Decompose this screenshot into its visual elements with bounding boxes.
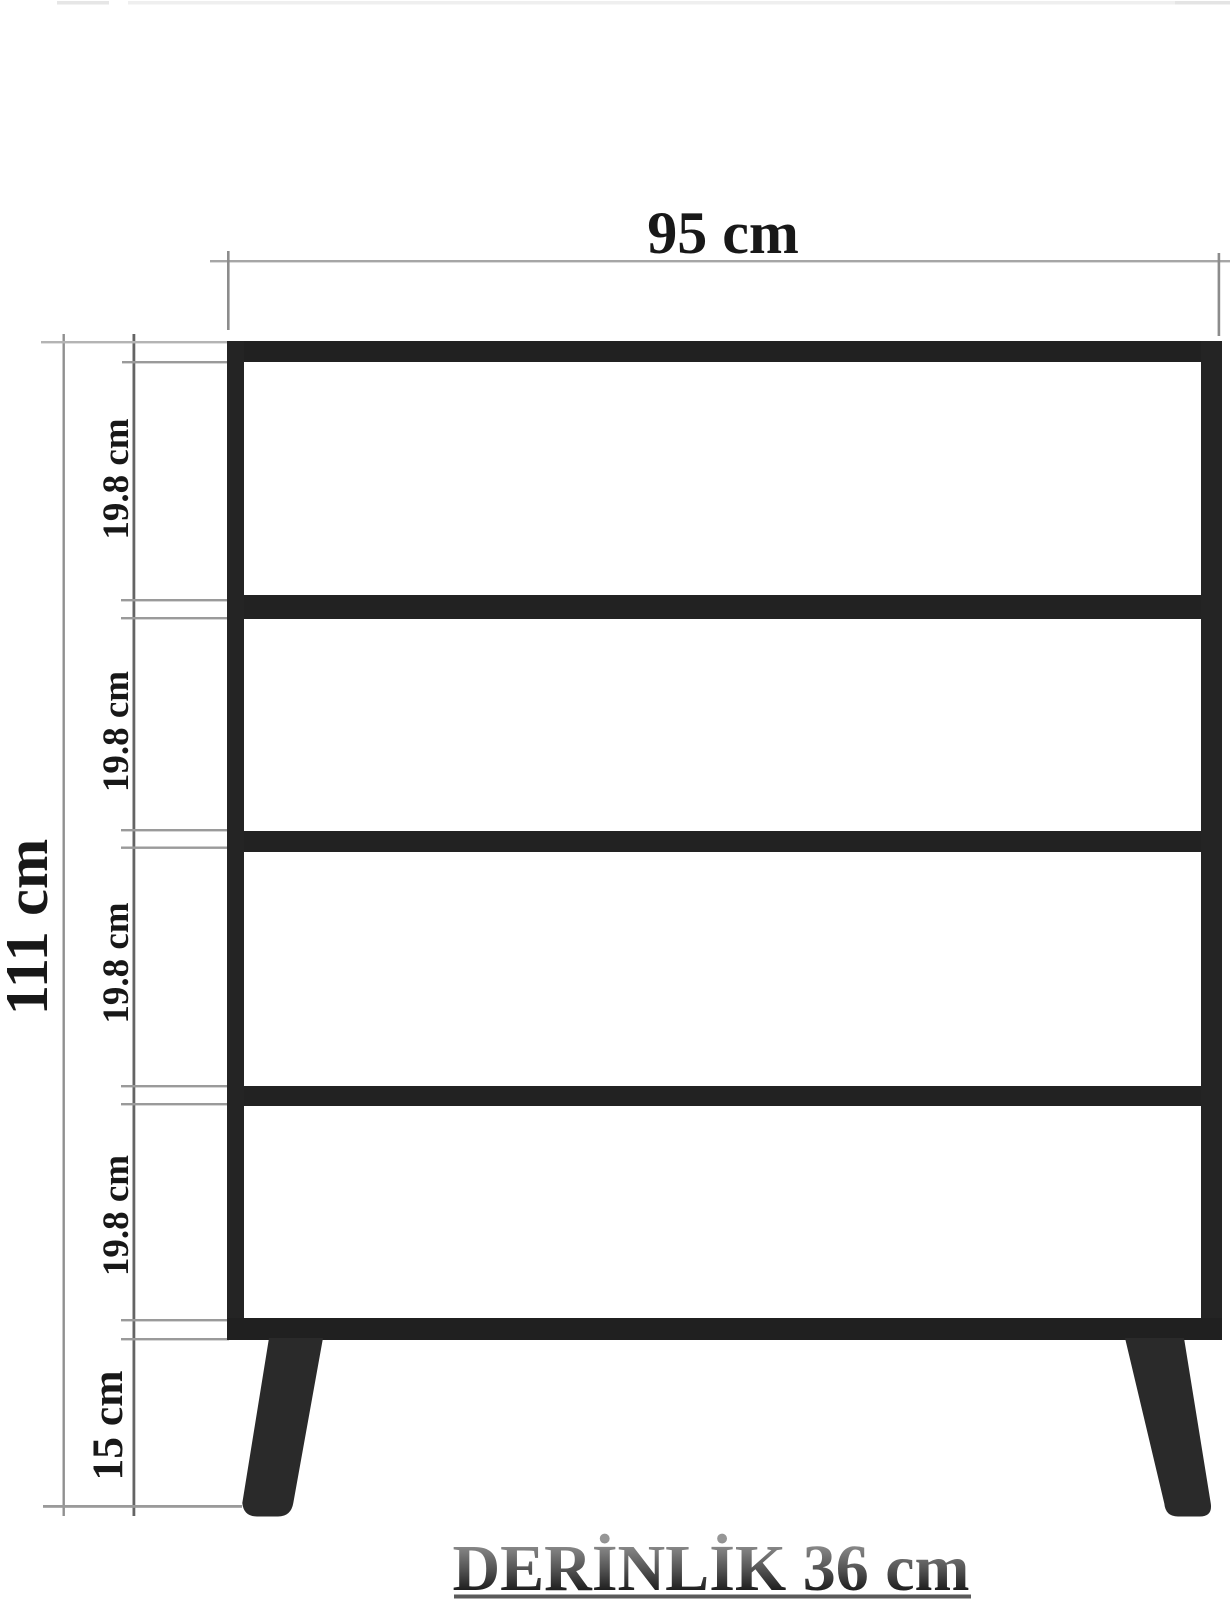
svg-text:19.8 cm: 19.8 cm [96,671,137,792]
svg-text:19.8 cm: 19.8 cm [96,1155,137,1276]
svg-text:DERİNLİK 36 cm: DERİNLİK 36 cm [452,1532,969,1600]
svg-text:19.8 cm: 19.8 cm [96,418,137,539]
svg-text:111 cm: 111 cm [0,839,61,1015]
svg-text:19.8 cm: 19.8 cm [96,902,137,1023]
svg-text:95 cm: 95 cm [647,200,799,266]
svg-text:15 cm: 15 cm [84,1371,132,1481]
